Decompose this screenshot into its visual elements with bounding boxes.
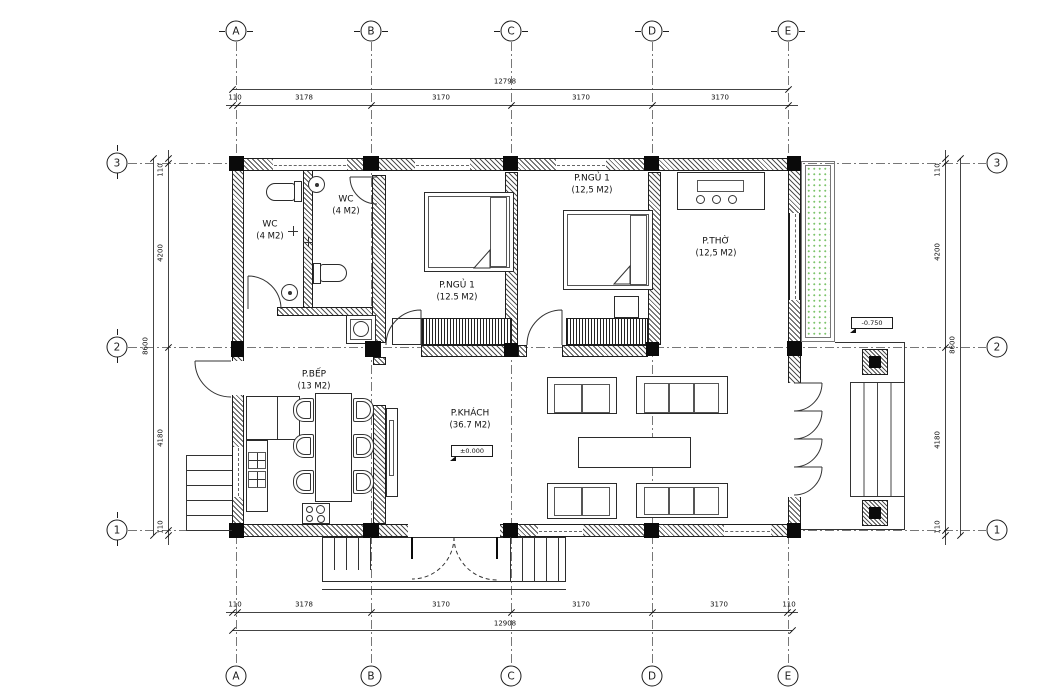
- room-name: WC: [256, 220, 283, 232]
- folding-door-arcs: [794, 383, 822, 495]
- room-name: P.KHÁCH: [449, 409, 490, 421]
- room-name: P.NGỦ 1: [436, 281, 477, 293]
- bed-1-fold: [474, 250, 490, 268]
- room-label-wc1: WC (4 M2): [256, 220, 283, 243]
- door-arc-kitchen-side: [195, 361, 231, 397]
- room-label-living: P.KHÁCH (36.7 M2): [449, 409, 490, 432]
- room-label-wc2: WC (4 M2): [332, 195, 359, 218]
- level-value: ±0.000: [460, 448, 484, 455]
- level-tag-porch: -0.750: [851, 317, 893, 329]
- level-value: -0.750: [862, 320, 883, 327]
- level-tag-living: ±0.000: [451, 445, 493, 457]
- door-arc-entrance-left: [412, 537, 454, 579]
- bed-2-fold: [614, 266, 630, 284]
- axis-bubble-E-top: E: [778, 21, 799, 42]
- room-name: P.THỜ: [695, 237, 736, 249]
- room-name: P.BẾP: [298, 370, 331, 382]
- room-area: (12.5 M2): [436, 292, 477, 303]
- room-area: (13 M2): [298, 381, 331, 392]
- room-label-bedroom2: P.NGỦ 1 (12,5 M2): [571, 174, 612, 197]
- door-arc-entrance-right: [454, 537, 497, 580]
- room-area: (4 M2): [332, 206, 359, 217]
- door-arc-bedroom1: [386, 310, 421, 345]
- room-area: (36.7 M2): [449, 420, 490, 431]
- axis-bubble-B-top: B: [361, 21, 382, 42]
- room-area: (4 M2): [256, 231, 283, 242]
- floor-plan: 12798 110 3178 3170 3170 3170 110 3178 3…: [0, 0, 1057, 694]
- axis-bubble-A-bottom: A: [226, 666, 247, 687]
- axis-bubble-C-bottom: C: [501, 666, 522, 687]
- axis-bubble-3-left: 3: [107, 153, 128, 174]
- room-label-kitchen: P.BẾP (13 M2): [298, 370, 331, 393]
- door-swing-overlay: [0, 0, 1057, 694]
- axis-bubble-1-right: 1: [987, 520, 1008, 541]
- door-arc-wc1: [248, 276, 281, 309]
- room-name: P.NGỦ 1: [571, 174, 612, 186]
- room-label-bedroom1: P.NGỦ 1 (12.5 M2): [436, 281, 477, 304]
- axis-bubble-C-top: C: [501, 21, 522, 42]
- axis-bubble-B-bottom: B: [361, 666, 382, 687]
- axis-bubble-2-right: 2: [987, 337, 1008, 358]
- axis-bubble-D-bottom: D: [642, 666, 663, 687]
- room-name: WC: [332, 195, 359, 207]
- room-area: (12,5 M2): [571, 185, 612, 196]
- axis-bubble-1-left: 1: [107, 520, 128, 541]
- room-area: (12,5 M2): [695, 248, 736, 259]
- axis-bubble-D-top: D: [642, 21, 663, 42]
- axis-bubble-2-left: 2: [107, 337, 128, 358]
- axis-bubble-E-bottom: E: [778, 666, 799, 687]
- axis-bubble-A-top: A: [226, 21, 247, 42]
- axis-bubble-3-right: 3: [987, 153, 1008, 174]
- room-label-worship: P.THỜ (12,5 M2): [695, 237, 736, 260]
- door-arc-bedroom2: [527, 310, 562, 345]
